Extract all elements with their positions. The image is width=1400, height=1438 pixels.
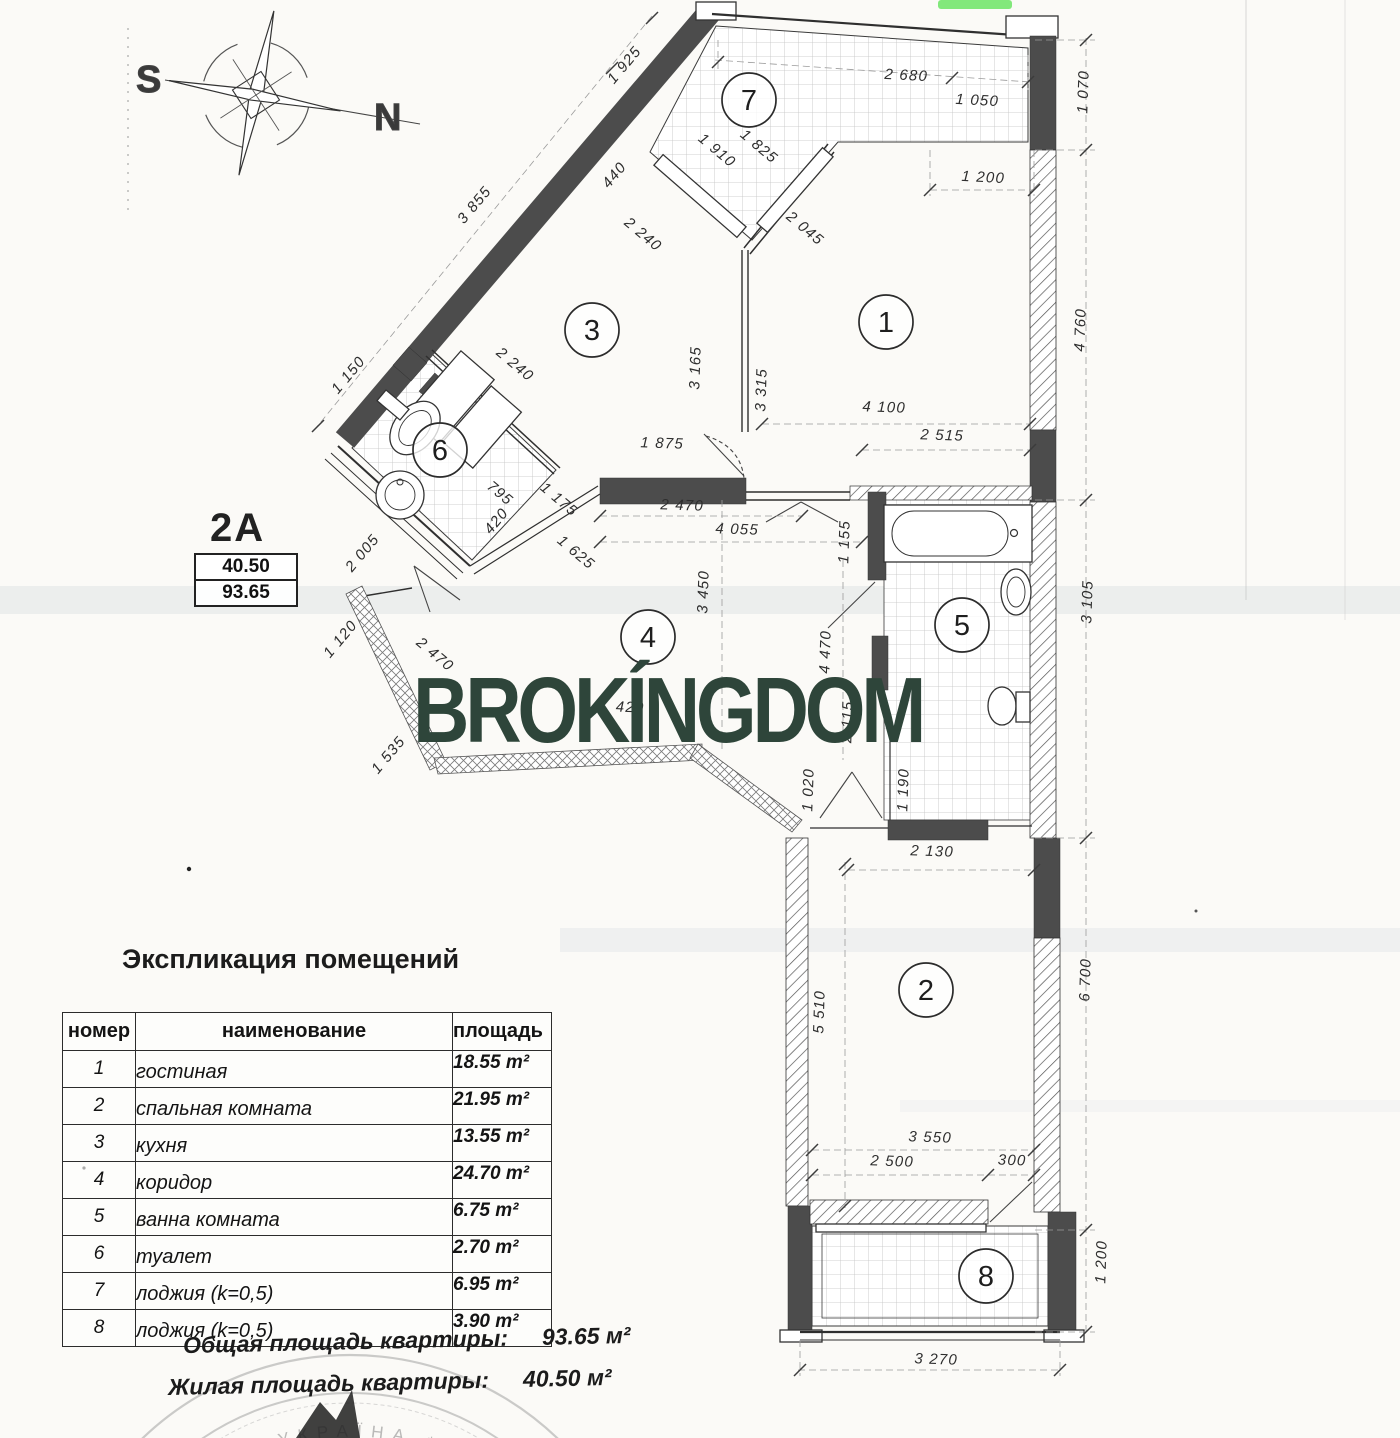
dimension-label: 2 515 <box>919 426 964 445</box>
dimension-label: 4 760 <box>1071 308 1090 352</box>
room-area-cell: 18.55 m² <box>453 1051 552 1088</box>
dimension-label: 1 050 <box>955 91 999 110</box>
room-number: 7 <box>741 85 757 117</box>
dimension-label: 4 055 <box>715 520 759 539</box>
unit-code-label: 2A <box>210 506 265 551</box>
dimension-label: 1 190 <box>894 768 913 812</box>
room-number: 8 <box>978 1261 994 1293</box>
total-area-value: 93.65 м² <box>542 1322 631 1350</box>
room-number: 6 <box>432 435 448 467</box>
room-number-cell: 2 <box>63 1088 136 1125</box>
unit-living-area: 40.50 <box>196 555 296 581</box>
dimension-label: 6 700 <box>1076 958 1095 1002</box>
compass-north-label: N <box>374 97 401 139</box>
dimension-label: 1 535 <box>368 733 409 777</box>
table-row: 5ванна комната6.75 m² <box>63 1199 552 1236</box>
dimension-label: 2 045 <box>782 207 827 249</box>
dimension-label: 1 625 <box>554 532 598 573</box>
dimension-label: 1 175 <box>537 479 581 520</box>
room-number: 5 <box>954 610 970 642</box>
dimension-label: 1 155 <box>835 520 854 564</box>
dimension-label: 5 510 <box>810 990 829 1034</box>
explication-table: номер наименование площадь 1гостиная18.5… <box>62 1012 552 1347</box>
table-row: 4коридор24.70 m² <box>63 1162 552 1199</box>
room-number-cell: 6 <box>63 1236 136 1273</box>
room-name-cell: туалет <box>136 1236 453 1273</box>
table-header-row: номер наименование площадь <box>63 1013 552 1051</box>
ink-speck <box>1195 910 1198 913</box>
dimension-label: 2 005 <box>341 531 383 576</box>
room-area-cell: 6.95 m² <box>453 1273 552 1310</box>
dimension-label: 1 070 <box>1074 70 1093 114</box>
unit-total-area: 93.65 <box>196 581 296 605</box>
dimension-label: 2 470 <box>659 496 704 515</box>
dimension-label: 2 680 <box>883 66 928 85</box>
living-area-value: 40.50 м² <box>523 1364 612 1392</box>
dimension-label: 1 150 <box>328 353 369 397</box>
wc-sink <box>376 471 424 519</box>
column-header-number: номер <box>63 1013 136 1051</box>
room-area-cell: 13.55 m² <box>453 1125 552 1162</box>
unit-area-box: 40.50 93.65 <box>194 553 298 607</box>
ink-speck <box>187 867 191 871</box>
dimension-label: 3 165 <box>686 346 705 390</box>
table-row: 1гостиная18.55 m² <box>63 1051 552 1088</box>
room-area-cell: 6.75 m² <box>453 1199 552 1236</box>
table-row: 3кухня13.55 m² <box>63 1125 552 1162</box>
room-name-cell: гостиная <box>136 1051 453 1088</box>
room-number: 4 <box>640 622 656 654</box>
dimension-label: 3 855 <box>454 183 495 227</box>
dimension-label: 3 270 <box>914 1350 958 1369</box>
room-number-cell: 3 <box>63 1125 136 1162</box>
dimension-label: 1 200 <box>1092 1240 1111 1284</box>
bathroom-toilet <box>988 687 1030 725</box>
dimension-label: 1 020 <box>799 768 818 812</box>
room-area-cell: 24.70 m² <box>453 1162 552 1199</box>
dimension-label: 3 450 <box>694 570 713 614</box>
column-header-area: площадь <box>453 1013 552 1051</box>
room-number-cell: 1 <box>63 1051 136 1088</box>
explication-title: Экспликация помещений <box>122 944 459 975</box>
scanned-floor-plan-page: S N <box>0 0 1400 1438</box>
dimension-label: 1 875 <box>640 434 684 453</box>
dimension-label: 3 105 <box>1078 580 1097 624</box>
column-header-name: наименование <box>136 1013 453 1051</box>
dimension-label: 440 <box>599 159 630 192</box>
room-number: 1 <box>878 307 894 339</box>
dimension-label: 2 240 <box>492 343 537 385</box>
table-row: 7лоджия (k=0,5)6.95 m² <box>63 1273 552 1310</box>
room-number: 3 <box>584 315 600 347</box>
dimension-label: 2 130 <box>909 842 954 861</box>
bathtub <box>884 505 1032 562</box>
dimension-label: 3 315 <box>752 368 771 412</box>
brokingdom-watermark: BROKÍNGDOM <box>413 664 922 757</box>
dimension-label: 2 500 <box>869 1152 914 1171</box>
room-number-cell: 5 <box>63 1199 136 1236</box>
room-number-cell: 4 <box>63 1162 136 1199</box>
room-number-cell: 7 <box>63 1273 136 1310</box>
table-row: 6туалет2.70 m² <box>63 1236 552 1273</box>
room-area-cell: 21.95 m² <box>453 1088 552 1125</box>
dimension-label: 2 240 <box>620 213 665 255</box>
room-name-cell: кухня <box>136 1125 453 1162</box>
room-name-cell: коридор <box>136 1162 453 1199</box>
room-name-cell: спальная комната <box>136 1088 453 1125</box>
compass-rose: S N <box>136 0 420 193</box>
compass-south-label: S <box>136 59 161 101</box>
room-number: 2 <box>918 975 934 1007</box>
dimension-label: 3 550 <box>908 1128 952 1147</box>
green-scan-bar <box>938 0 1012 9</box>
dimension-label: 4 100 <box>862 398 906 417</box>
room-number-cell: 8 <box>63 1310 136 1347</box>
bathroom-sink <box>1001 569 1031 615</box>
dimension-label: 1 120 <box>320 617 361 661</box>
room-name-cell: лоджия (k=0,5) <box>136 1273 453 1310</box>
room-name-cell: ванна комната <box>136 1199 453 1236</box>
table-row: 2спальная комната21.95 m² <box>63 1088 552 1125</box>
room-area-cell: 2.70 m² <box>453 1236 552 1273</box>
dimension-label: 1 200 <box>961 168 1005 187</box>
dimension-label: 300 <box>998 1152 1027 1170</box>
